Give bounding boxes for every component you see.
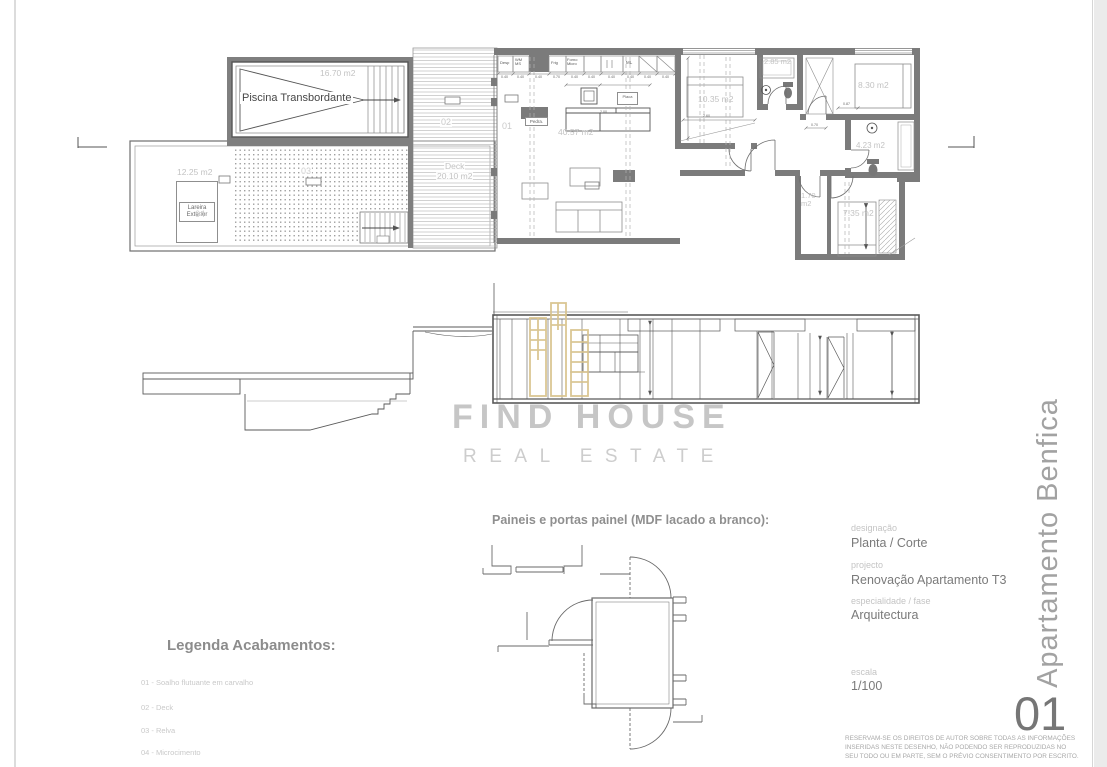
legend-item-03: 03 - Relva bbox=[141, 727, 175, 735]
especialidade-value: Arquitectura bbox=[851, 608, 918, 622]
copyright-line-3: SEU TODO OU EM PARTE, SEM O PRÉVIO CONSE… bbox=[845, 753, 1079, 760]
sala-area-label: 40.57 m2 bbox=[558, 128, 593, 138]
door-panel-detail bbox=[483, 545, 702, 749]
kitchen-cabinets bbox=[498, 56, 675, 72]
terraco-code-label: 04 bbox=[195, 209, 205, 219]
kitchen-desp-label: Desp bbox=[500, 61, 509, 65]
deck-code-label: 02 bbox=[440, 117, 452, 127]
dim-label: 0.40 bbox=[501, 75, 508, 79]
placa-box: Placa bbox=[617, 92, 638, 105]
projecto-label: projecto bbox=[851, 560, 883, 570]
quarto3-area-label: 7.35 m2 bbox=[843, 209, 874, 219]
dim-label: 0.40 bbox=[644, 75, 651, 79]
legend-item-02: 02 - Deck bbox=[141, 704, 173, 712]
watermark-brand-tagline: REAL ESTATE bbox=[463, 446, 726, 467]
dim-label: 0.40 bbox=[608, 75, 615, 79]
copyright-line-2: INSERIDAS NESTE DESENHO, NÃO PODENDO SER… bbox=[845, 744, 1066, 751]
dim-label: 0.40 bbox=[627, 75, 634, 79]
kitchen-frig-label: Frig bbox=[551, 61, 558, 65]
projecto-value: Renovação Apartamento T3 bbox=[851, 573, 1006, 587]
kitchen-ml-label: ML bbox=[626, 61, 632, 65]
especialidade-label: especialidade / fase bbox=[851, 596, 931, 606]
dim-label: 0.40 bbox=[571, 75, 578, 79]
designacao-label: designação bbox=[851, 523, 897, 533]
arrumo-area-label: 1.70 m2 bbox=[801, 192, 816, 209]
panels-heading: Paineis e portas painel (MDF lacado a br… bbox=[492, 513, 769, 527]
watermark-brand-name: FIND HOUSE bbox=[452, 398, 732, 436]
stairs-notch bbox=[377, 236, 389, 243]
escala-label: escala bbox=[851, 667, 877, 677]
apartment-walls bbox=[491, 48, 920, 260]
dim-label: 2.60 bbox=[703, 114, 710, 118]
quarto1-area-label: 10.35 m2 bbox=[698, 95, 733, 105]
designacao-value: Planta / Corte bbox=[851, 536, 927, 550]
deck-hatch bbox=[413, 48, 497, 248]
legend-heading: Legenda Acabamentos: bbox=[167, 638, 336, 655]
legend-item-04: 04 - Microcimento bbox=[141, 749, 201, 757]
drawing-sheet: Piscina Transbordante 16.70 m2 12.25 m2 … bbox=[0, 0, 1107, 767]
dim-label: 0.70 bbox=[811, 123, 818, 127]
dim-label: 2.00 bbox=[600, 110, 607, 114]
dim-label: 0.87 bbox=[843, 102, 850, 106]
dim-label: 0.40 bbox=[535, 75, 542, 79]
dim-label: 0.40 bbox=[517, 75, 524, 79]
project-title-vertical: Apartamento Benfica bbox=[1032, 373, 1068, 713]
wc1-area-label: 2.85 m2 bbox=[764, 58, 791, 66]
sala-code-label: 01 bbox=[502, 121, 512, 131]
dim-label: 0.40 bbox=[588, 75, 595, 79]
kitchen-forno-label: Forno Micro bbox=[567, 58, 577, 66]
deck-area-label: 20.10 m2 bbox=[436, 172, 473, 182]
piscina-label: Piscina Transbordante bbox=[240, 92, 353, 104]
escala-value: 1/100 bbox=[851, 679, 882, 693]
dim-label: 0.70 bbox=[553, 75, 560, 79]
kitchen-wm-label: WM MS bbox=[515, 58, 522, 66]
sheet-number: 01 bbox=[1014, 688, 1066, 741]
dim-label: 0.40 bbox=[662, 75, 669, 79]
relva-code-label: 03 bbox=[300, 166, 312, 176]
terraco-area-label: 12.25 m2 bbox=[177, 168, 212, 178]
findhouse-building-logo bbox=[530, 303, 588, 396]
pedra-box: Pedra. bbox=[525, 117, 548, 126]
wc2-area-label: 4.23 m2 bbox=[856, 142, 885, 151]
legend-item-01: 01 - Soalho flutuante em carvalho bbox=[141, 679, 253, 687]
piscina-area-label: 16.70 m2 bbox=[320, 69, 355, 79]
quarto2-area-label: 8.30 m2 bbox=[858, 81, 889, 91]
